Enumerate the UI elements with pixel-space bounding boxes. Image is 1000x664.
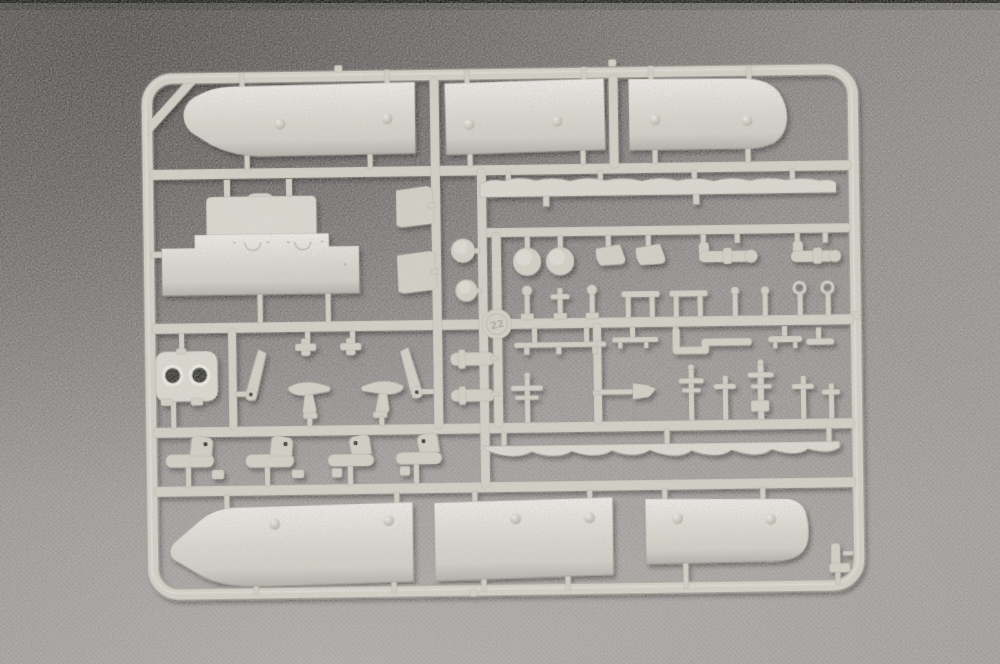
photo-grain [0, 0, 1000, 664]
photo-stage: 22 [0, 0, 1000, 664]
sprue-photo: 22 [0, 0, 1000, 664]
